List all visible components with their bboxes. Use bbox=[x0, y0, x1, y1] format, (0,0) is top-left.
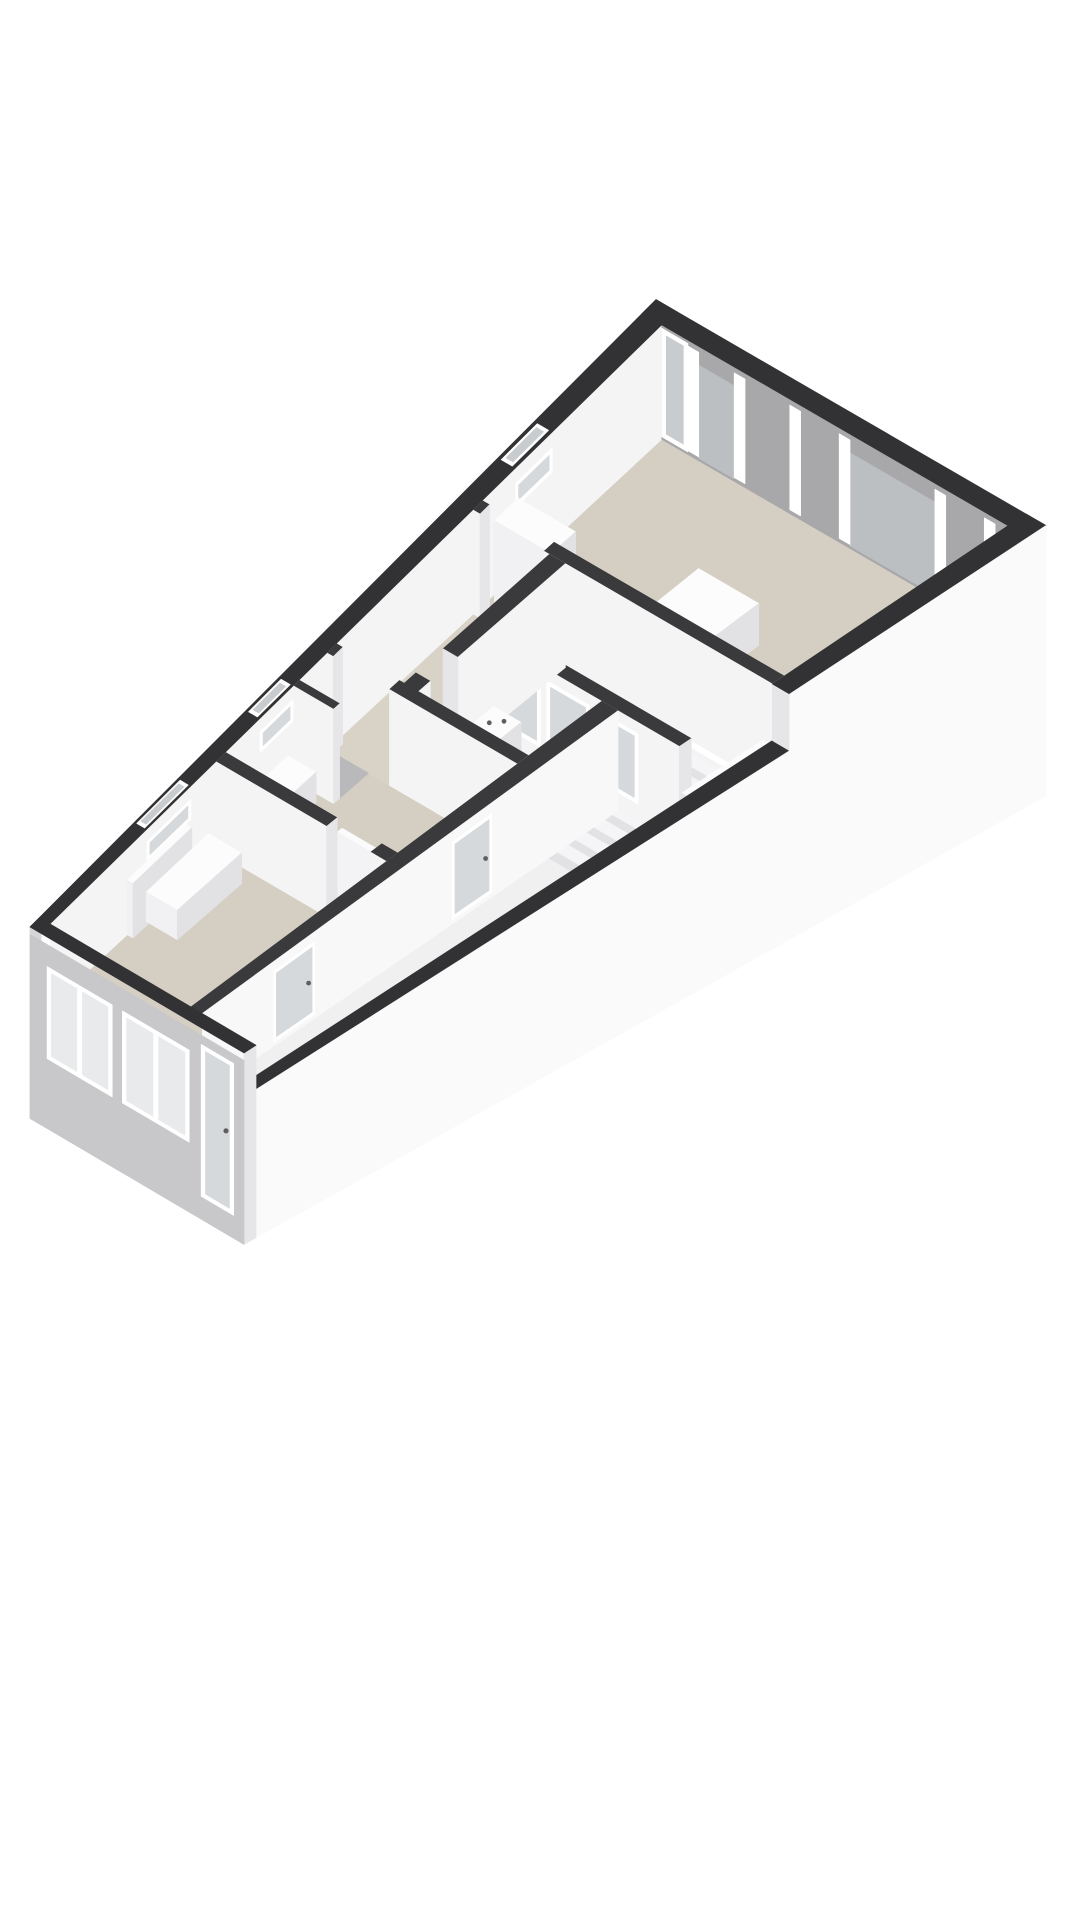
floorplan-3d-view bbox=[0, 0, 1080, 1920]
floorplan-3d-render bbox=[0, 0, 1080, 1920]
